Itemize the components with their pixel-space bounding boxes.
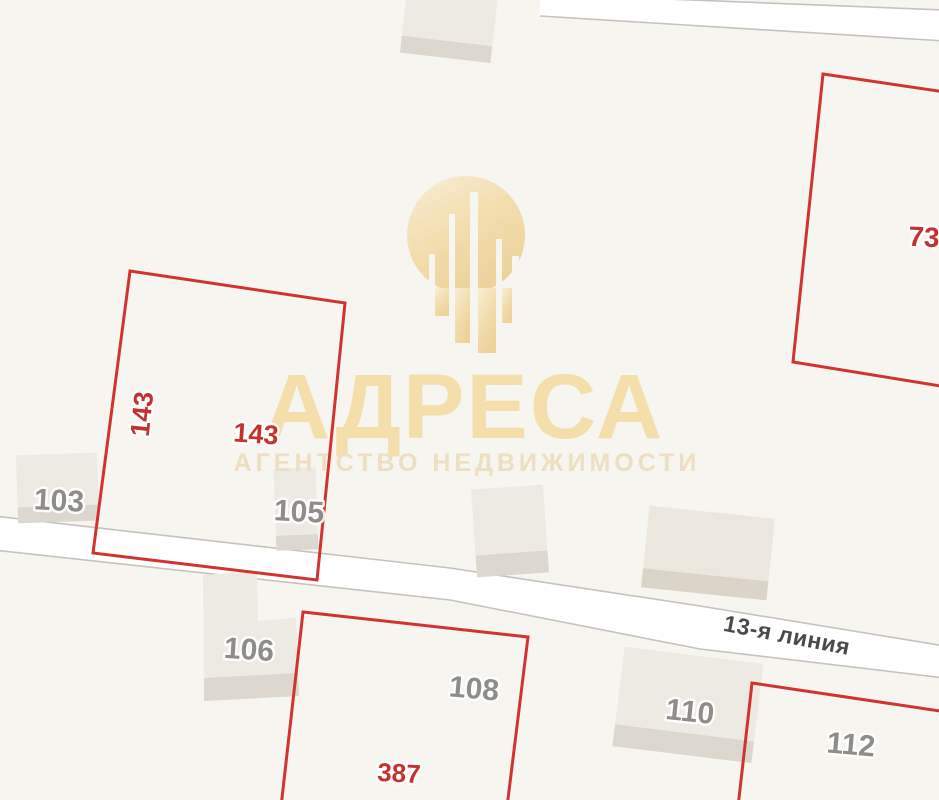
parcel-label-143: 143: [232, 417, 279, 450]
parcel-label-387: 387: [377, 757, 422, 789]
parcel-label-73: 73: [908, 221, 939, 254]
building-top[interactable]: [400, 0, 499, 63]
map-canvas[interactable]: АДРЕСА АГЕНТСТВО НЕДВИЖИМОСТИ 103 105 10…: [0, 0, 939, 800]
parcel-label-143-side: 143: [125, 390, 160, 438]
building-label-106: 106: [223, 632, 275, 668]
building-label-105: 105: [273, 494, 325, 530]
lot-label-112: 112: [825, 726, 876, 763]
building-label-103: 103: [33, 483, 85, 519]
map-viewport[interactable]: АДРЕСА АГЕНТСТВО НЕДВИЖИМОСТИ 103 105 10…: [0, 0, 939, 800]
watermark-tagline: АГЕНТСТВО НЕДВИЖИМОСТИ: [234, 449, 701, 477]
building-tan[interactable]: [641, 506, 775, 601]
building-label-110: 110: [664, 693, 716, 731]
logo-droplet-circle: [407, 176, 525, 294]
watermark-brand: АДРЕСА: [264, 356, 665, 458]
building-mid[interactable]: [471, 485, 549, 578]
lot-label-108: 108: [448, 670, 501, 707]
